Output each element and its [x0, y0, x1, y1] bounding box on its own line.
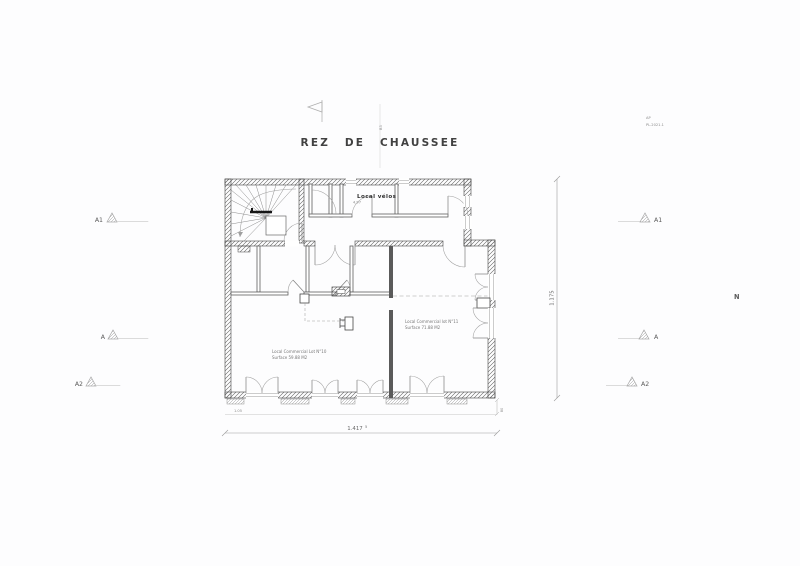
drawing-sheet: B3 REZ DE CHAUSSEE AP PL.2021.1 N A1 A A…: [0, 0, 800, 566]
door-swing-arc: [475, 274, 488, 287]
stamp-line-2: PL.2021.1: [646, 123, 664, 127]
central-wall: [389, 246, 393, 398]
door-swing-arc: [443, 245, 465, 267]
flag-marker-icon: [308, 102, 322, 112]
door-swing-arc: [325, 380, 338, 393]
section-triangle-icon: [107, 213, 117, 222]
svg-text:A: A: [654, 334, 659, 341]
dim-overall-width-sup: 5: [365, 425, 367, 429]
north-label: N: [734, 293, 740, 301]
mid-partitions: [231, 246, 391, 295]
page-title: REZ DE CHAUSSEE: [301, 137, 460, 149]
room-label-lot10-line1: Local Commercial Lot N°10: [272, 349, 327, 354]
section-triangle-icon: [627, 377, 637, 386]
section-marker-a2-left: A2: [75, 377, 120, 388]
dim-right-offset: 80: [500, 407, 504, 412]
steel-column-icon: [340, 317, 353, 330]
svg-text:A1: A1: [654, 217, 662, 224]
door-swing-arc: [262, 377, 278, 393]
section-triangle-icon: [86, 377, 96, 386]
door-swing-arc: [473, 308, 488, 323]
top-band-partitions: [309, 184, 448, 217]
window-sills: [227, 399, 467, 404]
section-markers-right: A1 A A2: [606, 213, 662, 388]
door-swing-arc: [246, 377, 262, 393]
sheet-stamp: AP PL.2021.1: [646, 116, 664, 127]
dim-overall-height: 1.175: [550, 290, 556, 305]
svg-text:A2: A2: [75, 381, 83, 388]
door-swing-arc: [370, 380, 383, 393]
room-label-lot11-line2: Surface 71.88 M2: [405, 325, 441, 330]
grid-marker-label: B3: [379, 125, 383, 130]
dim-left-inset: 1.05: [234, 409, 242, 413]
door-swing-arc: [315, 245, 335, 265]
section-marker-a-right: A: [618, 330, 659, 341]
svg-text:A: A: [101, 334, 106, 341]
dim-overall-width: 1.417: [347, 426, 362, 432]
section-triangle-icon: [108, 330, 118, 339]
room-label-lot10-line2: Surface 59.88 M2: [272, 355, 308, 360]
room-label-lot11-line1: Local Commercial lot N°11: [405, 319, 459, 324]
door-swing-arc: [357, 380, 370, 393]
section-triangle-icon: [639, 330, 649, 339]
room-area-velos: 4.97: [353, 201, 361, 205]
section-marker-a2-right: A2: [606, 377, 649, 388]
room-label-velos: Local vélos: [357, 193, 397, 200]
staircase: [225, 179, 304, 252]
door-swing-arc: [473, 323, 488, 338]
door-swing-arc: [410, 376, 427, 393]
section-markers-left: A1 A A2: [75, 213, 148, 388]
stamp-line-1: AP: [646, 116, 651, 120]
svg-text:A2: A2: [641, 381, 649, 388]
title-block: B3 REZ DE CHAUSSEE: [301, 100, 460, 168]
door-swing-arc: [427, 376, 444, 393]
section-marker-a1-left: A1: [95, 213, 148, 224]
section-triangle-icon: [640, 213, 650, 222]
section-marker-a-left: A: [101, 330, 148, 341]
svg-text:A1: A1: [95, 217, 103, 224]
door-swing-arc: [312, 380, 325, 393]
corridor-wall: [304, 241, 465, 267]
dimension-labels: 1.175 1.417 5 80 1.05: [234, 290, 556, 432]
door-swing-arc: [288, 280, 293, 292]
section-marker-a1-right: A1: [618, 213, 662, 224]
floor-plan-drawing: B3 REZ DE CHAUSSEE AP PL.2021.1 N A1 A A…: [0, 0, 800, 566]
